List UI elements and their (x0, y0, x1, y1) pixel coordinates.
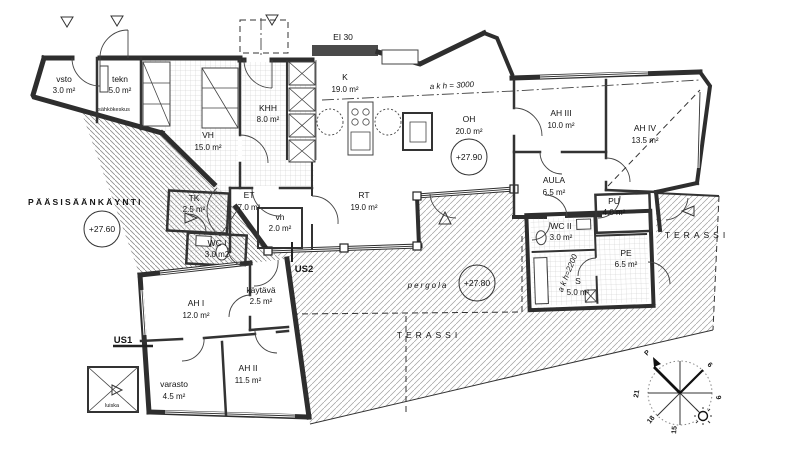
room-vsto-area: 3.0 m² (53, 86, 76, 95)
room-et-area: 7.0 m² (238, 203, 261, 212)
reference-lines (322, 80, 700, 186)
ei30-firewall (312, 45, 378, 56)
terassi-right-label: TERASSI (665, 230, 729, 240)
room-vh2-name: vh (276, 212, 285, 222)
room-et-name: ET (244, 190, 255, 200)
akh3000-label: a k h = 3000 (430, 80, 475, 91)
sahkokeskus-label: sähkökeskus (98, 107, 130, 113)
room-varasto-area: 4.5 m² (163, 392, 186, 401)
room-ah2-area: 11.5 m² (235, 376, 262, 385)
room-s-name: S (575, 276, 581, 286)
us2-label: US2 (295, 264, 313, 275)
compass-6-label: 6 (706, 361, 714, 369)
room-khh-area: 8.0 m² (257, 115, 280, 124)
room-tk-area: 2.5 m² (183, 205, 206, 214)
north-arrow (653, 357, 661, 367)
us1-label: US1 (114, 335, 133, 346)
room-vh-name: VH (202, 130, 214, 140)
compass-north-label: P (643, 349, 651, 357)
room-vh2-area: 2.0 m² (269, 224, 292, 233)
room-k-area: 19.0 m² (331, 85, 358, 94)
room-pe-area: 6.5 m² (615, 260, 638, 269)
room-ah3-name: AH III (550, 108, 571, 118)
room-oh-area: 20.0 m² (455, 127, 482, 136)
room-wc1-area: 3.0 m2 (205, 250, 230, 259)
floor-plan-drawing: +27.60 +27.90 +27.80 US1 US2 vsto 3.0 m²… (0, 0, 800, 450)
fireplace (403, 113, 432, 150)
room-oh-name: OH (463, 114, 476, 124)
level-entrance: +27.60 (89, 224, 116, 234)
room-pe-name: PE (620, 248, 632, 258)
room-aula-name: AULA (543, 175, 566, 185)
room-rt-name: RT (358, 190, 369, 200)
room-rt-area: 19.0 m² (350, 203, 377, 212)
room-tekn-name: tekn (112, 74, 128, 84)
compass-9-label: 9 (714, 395, 722, 400)
triangle-marker-2 (111, 16, 123, 26)
room-ah4-name: AH IV (634, 123, 657, 133)
room-vsto-name: vsto (56, 74, 72, 84)
compass-rose: P 6 9 15 18 21 (633, 349, 722, 434)
room-wc2-name: WC II (550, 221, 571, 231)
room-ah3-area: 10.0 m² (547, 121, 574, 130)
room-ah4-area: 13.5 m² (631, 136, 658, 145)
level-living: +27.90 (456, 152, 483, 162)
luiska-label: luiska (105, 403, 120, 409)
compass-15-label: 15 (671, 426, 679, 434)
room-kaytava-name: käytävä (246, 285, 276, 295)
room-aula-area: 6.5 m² (543, 188, 566, 197)
floor-plan-canvas: +27.60 +27.90 +27.80 US1 US2 vsto 3.0 m²… (0, 0, 800, 450)
kitchen-counter (382, 50, 418, 64)
room-s-area: 5.0 m² (567, 288, 590, 297)
room-ah2-name: AH II (239, 363, 258, 373)
room-pu-area: 4.0 m² (603, 208, 626, 217)
room-ah1-name: AH I (188, 298, 205, 308)
ei30-label: EI 30 (333, 32, 353, 42)
room-tk-name: TK (189, 193, 200, 203)
entrance-label: PÄÄSISÄÄNKÄYNTI (28, 197, 143, 207)
pergola-label: pergola (407, 281, 449, 290)
entrance-canopy (240, 20, 288, 53)
room-tekn-area: 5.0 m² (109, 86, 132, 95)
compass-21-label: 21 (633, 389, 641, 398)
electrical-panel (100, 66, 108, 92)
triangle-marker-1 (61, 17, 73, 27)
room-wc1-name: WC I (208, 238, 227, 248)
room-ah1-area: 12.0 m² (182, 311, 209, 320)
room-khh-name: KHH (259, 103, 277, 113)
terassi-main-label: TERASSI (397, 330, 461, 340)
compass-18-label: 18 (646, 415, 656, 426)
sun-icon (694, 407, 712, 425)
room-kaytava-area: 2.5 m² (250, 297, 273, 306)
room-k-name: K (342, 72, 348, 82)
room-varasto-name: varasto (160, 379, 188, 389)
room-wc2-area: 3.0 m² (550, 233, 573, 242)
level-pergola: +27.80 (464, 278, 491, 288)
room-vh-area: 15.0 m² (194, 143, 221, 152)
room-pu-name: PU (608, 196, 620, 206)
kitchen-island (317, 102, 401, 155)
